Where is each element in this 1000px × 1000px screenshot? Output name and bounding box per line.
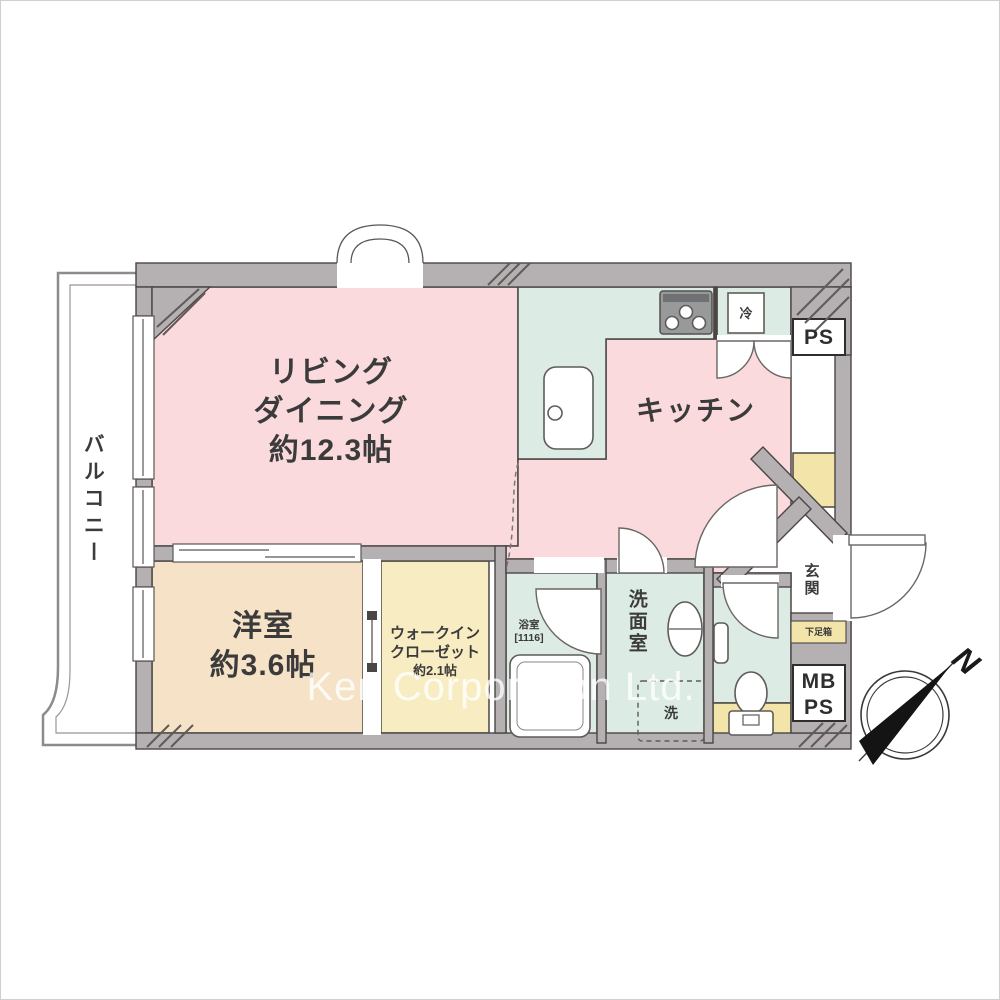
living-dining-line2: ダイニング	[206, 392, 456, 431]
entrance-opening	[833, 535, 853, 621]
watermark: Ken Corporation Ltd.	[261, 665, 741, 710]
wic-line1: ウォークイン	[379, 625, 491, 644]
bath-door-gap	[534, 557, 604, 573]
ps-label: PS	[793, 325, 845, 351]
front-door-arc	[851, 543, 926, 618]
floor-plan-drawing: N 冷 洗	[1, 1, 1000, 1000]
kitchen-label: キッチン	[601, 393, 791, 429]
living-dining-size: 約12.3帖	[206, 431, 456, 470]
living-dining-label: リビング ダイニング 約12.3帖	[206, 353, 456, 470]
compass: N	[859, 639, 987, 765]
floor-plan-page: N 冷 洗 リビング ダイニング 約12.3帖 キッチン 洋室 約3.6帖 ウォ…	[0, 0, 1000, 1000]
compass-needle	[859, 665, 951, 765]
ps-line: PS	[793, 695, 845, 721]
bathroom-size: [1116]	[503, 632, 555, 645]
stove-burner	[680, 306, 693, 319]
living-dining-line1: リビング	[206, 353, 456, 392]
western-room-name: 洋室	[158, 607, 368, 646]
closet-door-mark	[367, 611, 377, 620]
wall-top	[136, 263, 851, 287]
front-door-leaf	[849, 535, 925, 545]
mb-line: MB	[793, 669, 845, 695]
sliding-door-living-bedroom	[173, 544, 361, 562]
wall-left-seg	[136, 479, 152, 487]
stove-burner	[666, 317, 679, 330]
stove-burner	[693, 317, 706, 330]
toilet-hand-basin	[714, 623, 728, 663]
shoe-cabinet-label: 下足箱	[791, 627, 846, 639]
stove-panel	[663, 294, 709, 302]
sink-faucet	[548, 406, 562, 420]
bay-window-outer-arc	[337, 225, 423, 263]
bathroom-name: 浴室	[503, 619, 555, 632]
compass-north-label: N	[946, 639, 988, 682]
wall-washroom-toilet	[704, 559, 713, 743]
refrigerator-label: 冷	[739, 306, 752, 321]
wall-left-seg	[136, 287, 152, 316]
mb-ps-label: MB PS	[793, 669, 845, 722]
wall-left-seg	[136, 661, 152, 733]
balcony-label: バルコニー	[79, 433, 106, 633]
entrance-label: 玄関	[801, 563, 821, 623]
bay-window-gap	[337, 262, 423, 288]
wall-fridge-divider	[714, 287, 717, 339]
wic-line2: クローゼット	[379, 644, 491, 663]
bathroom-label: 浴室 [1116]	[503, 619, 555, 645]
wall-left-seg	[136, 567, 152, 587]
